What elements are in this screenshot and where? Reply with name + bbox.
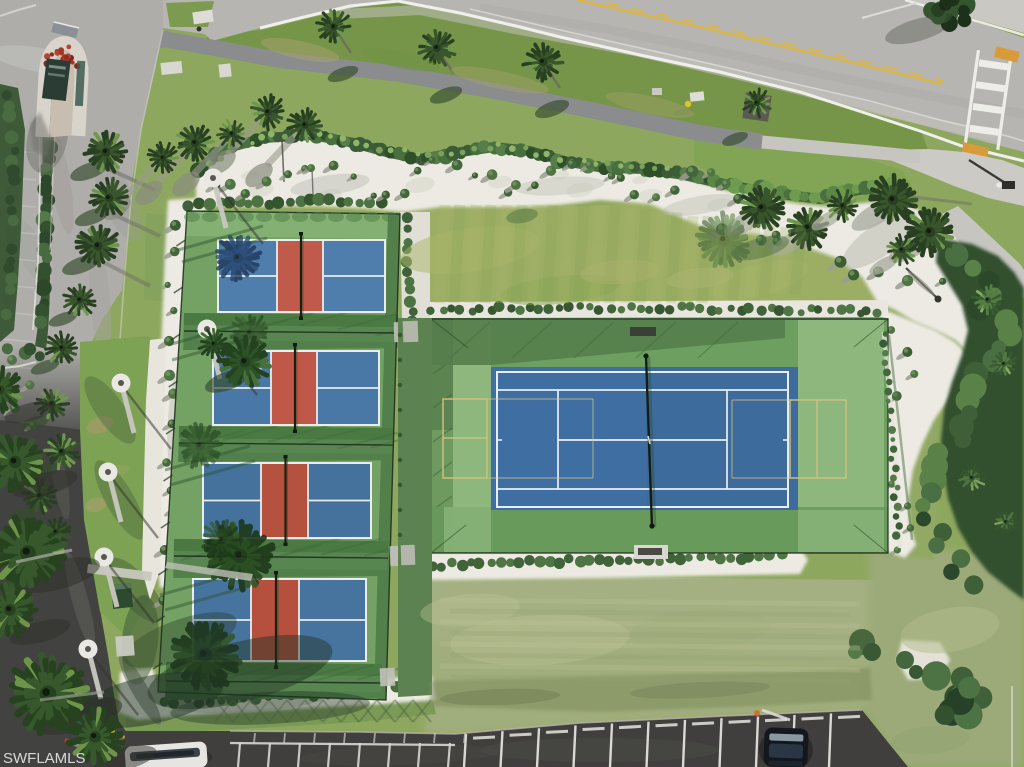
svg-text:SWFLAMLS: SWFLAMLS [3,750,86,767]
